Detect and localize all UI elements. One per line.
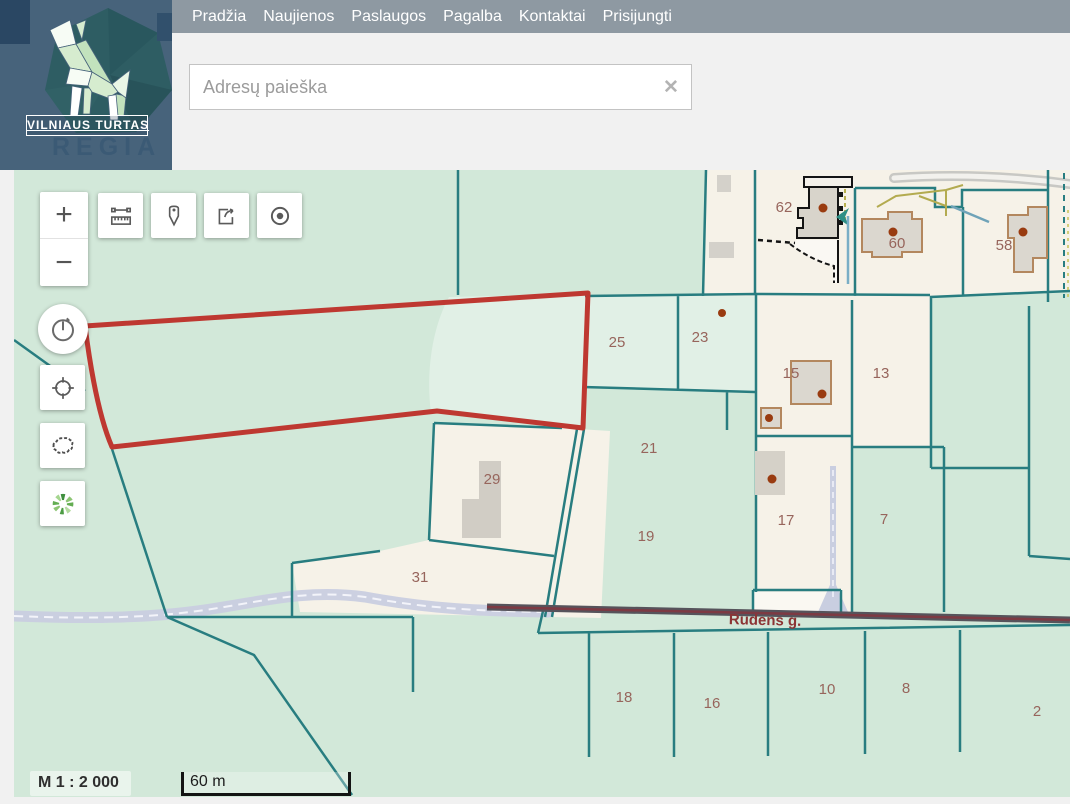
parcel-label-62: 62 (776, 199, 793, 216)
parcel-label-60: 60 (889, 235, 906, 252)
add-marker-button[interactable] (151, 193, 196, 238)
history-button[interactable] (38, 304, 88, 354)
zoom-control: + − (40, 192, 88, 286)
parcel-label-2: 2 (1033, 703, 1041, 720)
map-canvas[interactable]: Rudens g. 626058252315132119293117718161… (14, 170, 1070, 797)
brand-name: VILNIAUS TURTAS (26, 115, 148, 136)
regia-watermark: REGIA (52, 133, 161, 162)
nav-item-pradzia[interactable]: Pradžia (192, 8, 246, 26)
green-wheel-icon (49, 490, 77, 518)
parcel-label-17: 17 (778, 512, 795, 529)
basemap-wheel-button[interactable] (40, 481, 85, 526)
zoom-in-button[interactable]: + (40, 192, 88, 239)
nav-item-paslaugos[interactable]: Paslaugos (351, 8, 426, 26)
parcel-label-25: 25 (609, 334, 626, 351)
parcel-fill-inside-selection (429, 294, 586, 427)
crosshair-icon (50, 375, 76, 401)
geolocate-button[interactable] (40, 365, 85, 410)
parcel-label-21: 21 (641, 440, 658, 457)
clear-search-icon[interactable]: ✕ (651, 76, 691, 99)
lithuania-outline-icon (49, 432, 77, 460)
locate-button[interactable] (257, 193, 302, 238)
parcel-label-23: 23 (692, 329, 709, 346)
ruler-icon (108, 203, 134, 229)
address-search-input[interactable] (190, 77, 651, 98)
map-pin-icon (161, 203, 187, 229)
street-label: Rudens g. (729, 611, 802, 630)
scale-bar-label: 60 m (190, 773, 226, 791)
nav-item-prisijungti[interactable]: Prisijungti (603, 8, 672, 26)
clock-icon (48, 314, 78, 344)
parcel-label-58: 58 (996, 237, 1013, 254)
share-arrow-icon (214, 203, 240, 229)
address-search-box[interactable]: ✕ (189, 64, 692, 110)
measure-button[interactable] (98, 193, 143, 238)
parcel-label-18: 18 (616, 689, 633, 706)
search-zone: ✕ (172, 33, 1070, 170)
logo-corner-decoration2 (157, 13, 172, 41)
parcel-label-10: 10 (819, 681, 836, 698)
lithuania-extent-button[interactable] (40, 423, 85, 468)
parcel-label-31: 31 (412, 569, 429, 586)
zoom-out-button[interactable]: − (40, 239, 88, 286)
parcel-label-16: 16 (704, 695, 721, 712)
parcel-label-7: 7 (880, 511, 888, 528)
nav-item-naujienos[interactable]: Naujienos (263, 8, 334, 26)
scale-bar: 60 m (181, 772, 351, 796)
nav-item-kontaktai[interactable]: Kontaktai (519, 8, 586, 26)
nav-item-pagalba[interactable]: Pagalba (443, 8, 502, 26)
parcel-label-8: 8 (902, 680, 910, 697)
parcel-label-13: 13 (873, 365, 890, 382)
parcel-label-29: 29 (484, 471, 501, 488)
parcel-label-15: 15 (783, 365, 800, 382)
map-viewport[interactable]: Rudens g. 626058252315132119293117718161… (14, 170, 1070, 797)
parcel-label-19: 19 (638, 528, 655, 545)
scale-ratio-label: M 1 : 2 000 (30, 771, 131, 796)
target-dot-icon (267, 203, 293, 229)
export-button[interactable] (204, 193, 249, 238)
top-navbar: Pradžia Naujienos Paslaugos Pagalba Kont… (172, 0, 1070, 33)
logo-corner-decoration (0, 0, 30, 44)
brand-logo[interactable]: REGIA VILNIAUS TURTAS (0, 0, 172, 170)
